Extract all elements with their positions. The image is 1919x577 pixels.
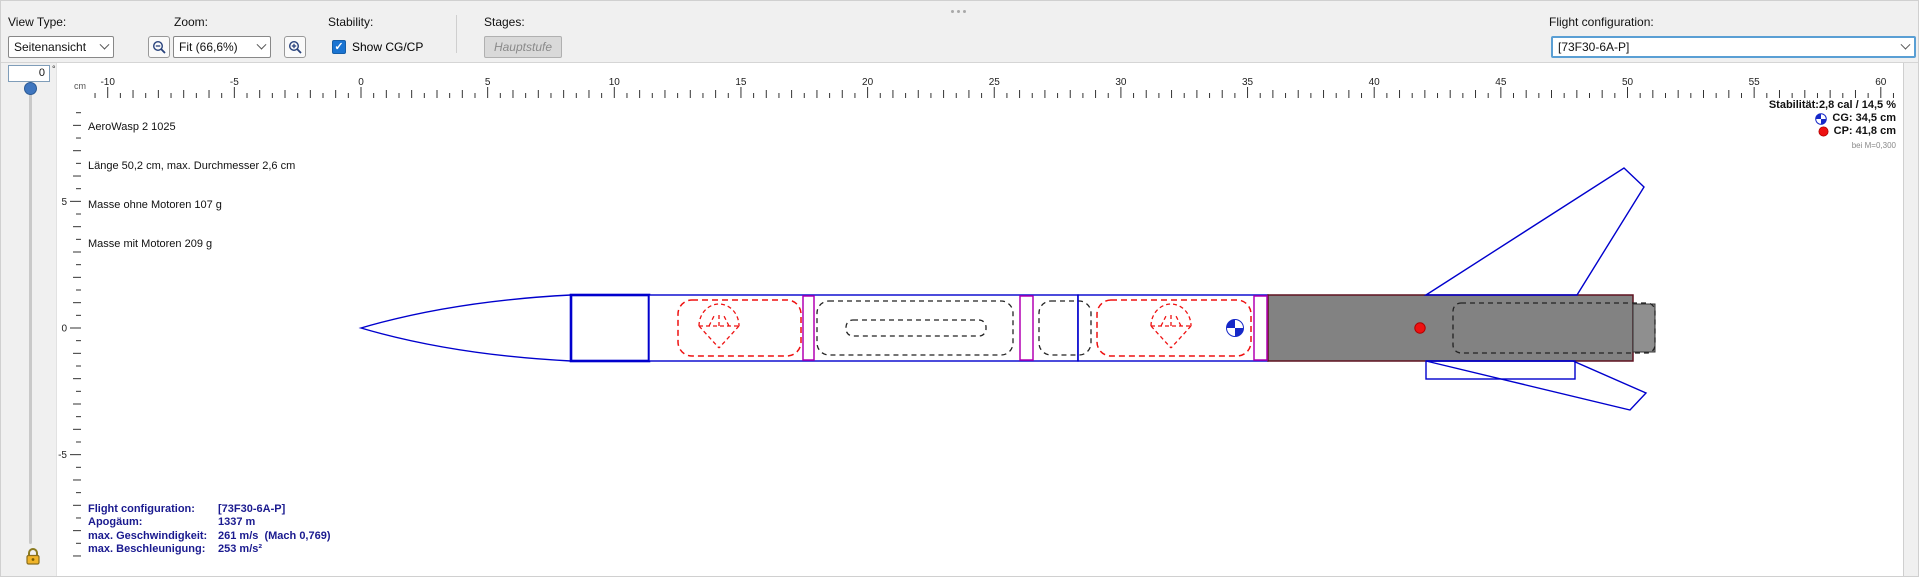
flight-config-value: [73F30-6A-P]: [1558, 40, 1629, 54]
chevron-down-icon: [1901, 39, 1911, 49]
lock-toggle[interactable]: [23, 546, 43, 566]
flight-config-combo[interactable]: [73F30-6A-P]: [1551, 36, 1916, 58]
show-cgcp-label: Show CG/CP: [352, 40, 423, 54]
zoom-in-button[interactable]: [284, 36, 306, 58]
flight-data-row: Flight configuration:[73F30-6A-P]: [88, 503, 331, 516]
flight-data-row: max. Beschleunigung:253 m/s²: [88, 543, 331, 556]
flight-data-row: Apogäum:1337 m: [88, 516, 331, 529]
toolbar: View Type: Seitenansicht Zoom: Fit (66,6…: [1, 1, 1919, 63]
cg-legend-icon: [1815, 113, 1827, 125]
rocket-mass-empty: Masse ohne Motoren 107 g: [88, 199, 295, 212]
view-type-combo[interactable]: Seitenansicht: [8, 36, 114, 58]
view-type-value: Seitenansicht: [14, 40, 86, 54]
show-cgcp-checkbox-row: ✓ Show CG/CP: [332, 40, 423, 54]
magnifier-minus-icon: [152, 40, 167, 55]
cg-value: CG: 34,5 cm: [1832, 112, 1896, 125]
zoom-combo[interactable]: Fit (66,6%): [173, 36, 271, 58]
cp-value: CP: 41,8 cm: [1834, 125, 1896, 138]
zoom-value: Fit (66,6%): [179, 40, 238, 54]
lock-icon: [23, 546, 43, 566]
zoom-label: Zoom:: [174, 15, 208, 29]
stability-value: Stabilität:2,8 cal / 14,5 %: [1769, 99, 1896, 112]
rotation-control-panel: 0 °: [1, 63, 57, 577]
magnifier-plus-icon: [288, 40, 303, 55]
stability-label: Stability:: [328, 15, 373, 29]
degree-unit-label: °: [52, 64, 56, 74]
rotation-slider-thumb[interactable]: [24, 82, 37, 95]
stability-info-block: Stabilität:2,8 cal / 14,5 % CG: 34,5 cm …: [1769, 99, 1896, 152]
flight-config-label: Flight configuration:: [1549, 15, 1654, 29]
stage-toggle-button[interactable]: Hauptstufe: [484, 36, 562, 58]
rotation-angle-input[interactable]: 0: [8, 65, 50, 82]
stages-label: Stages:: [484, 15, 525, 29]
rotation-slider-track[interactable]: [29, 87, 32, 544]
rocket-name: AeroWasp 2 1025: [88, 121, 295, 134]
canvas-right-gutter: [1903, 63, 1919, 577]
toolbar-separator: [456, 15, 457, 53]
split-pane-handle-icon[interactable]: [951, 10, 954, 13]
flight-data-row: max. Geschwindigkeit:261 m/s (Mach 0,769…: [88, 530, 331, 543]
rocket-canvas[interactable]: [57, 63, 1903, 577]
chevron-down-icon: [257, 39, 267, 49]
chevron-down-icon: [100, 39, 110, 49]
cp-legend-icon: [1818, 126, 1829, 137]
checkbox-checked-icon[interactable]: ✓: [332, 40, 346, 54]
view-type-label: View Type:: [8, 15, 66, 29]
zoom-out-button[interactable]: [148, 36, 170, 58]
mach-note: bei M=0,300: [1769, 139, 1896, 152]
rocket-mass-loaded: Masse mit Motoren 209 g: [88, 238, 295, 251]
rocket-info-block: AeroWasp 2 1025 Länge 50,2 cm, max. Durc…: [88, 95, 295, 277]
rocket-dimensions: Länge 50,2 cm, max. Durchmesser 2,6 cm: [88, 160, 295, 173]
flight-data-block: Flight configuration:[73F30-6A-P] Apogäu…: [88, 503, 331, 557]
openrocket-design-view: View Type: Seitenansicht Zoom: Fit (66,6…: [0, 0, 1919, 577]
